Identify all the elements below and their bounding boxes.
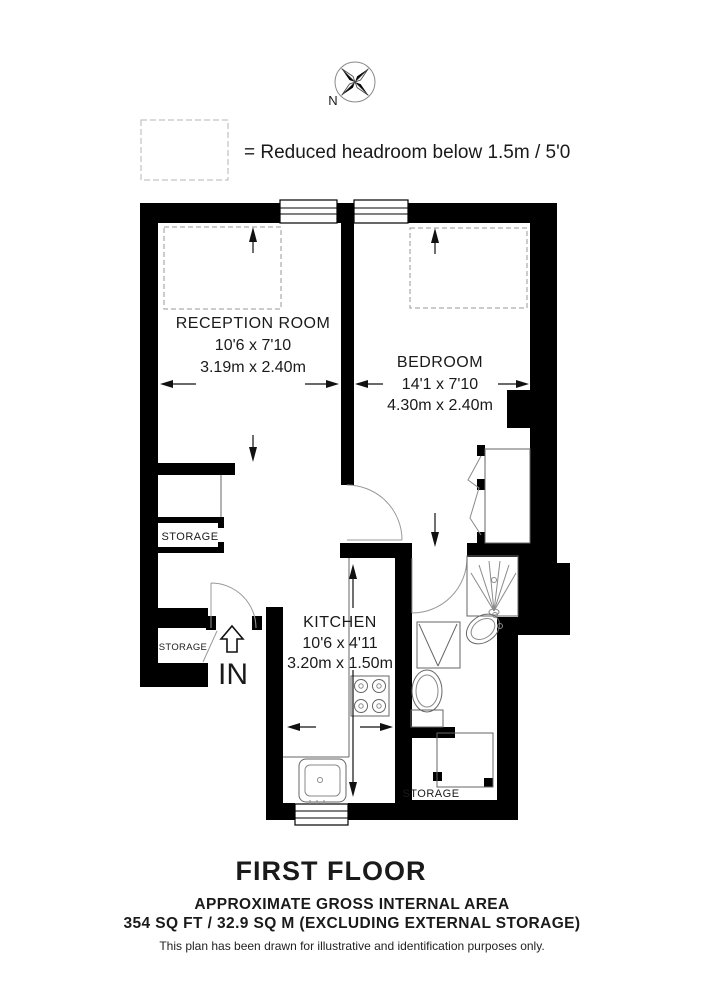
kitchen-labels: KITCHEN 10'6 x 4'11 3.20m x 1.50m <box>287 614 393 672</box>
reception-room-labels: RECEPTION ROOM 10'6 x 7'10 3.19m x 2.40m <box>176 315 331 376</box>
hallway-closet <box>485 449 530 543</box>
entrance-arrow-icon <box>221 626 243 652</box>
room-dims-imperial-kitchen: 10'6 x 4'11 <box>302 635 377 652</box>
room-dims-metric-reception: 3.19m x 2.40m <box>200 359 306 376</box>
hob <box>351 676 389 716</box>
legend-swatch <box>141 120 228 180</box>
door-bedroom <box>347 485 402 540</box>
disclaimer: This plan has been drawn for illustrativ… <box>159 939 544 953</box>
shower-tray <box>417 622 460 668</box>
bifold-closet-door <box>468 456 481 535</box>
floor-title: FIRST FLOOR <box>236 856 427 886</box>
entrance-label: IN <box>218 658 248 691</box>
legend-text: = Reduced headroom below 1.5m / 5'0 <box>244 142 570 163</box>
shower <box>467 556 518 616</box>
toilet <box>411 670 443 727</box>
room-dims-imperial-bedroom: 14'1 x 7'10 <box>402 376 478 393</box>
area-detail: 354 SQ FT / 32.9 SQ M (EXCLUDING EXTERNA… <box>124 915 581 932</box>
door-bathroom <box>412 558 467 613</box>
storage-label-entry: STORAGE <box>159 642 207 653</box>
reduced-headroom-zone-bedroom <box>410 228 527 308</box>
room-name-kitchen: KITCHEN <box>303 614 377 631</box>
north-label: N <box>328 93 337 108</box>
window-kitchen <box>295 804 348 825</box>
storage-label-upper: STORAGE <box>161 531 218 543</box>
room-dims-imperial-reception: 10'6 x 7'10 <box>215 337 291 354</box>
room-dims-metric-bedroom: 4.30m x 2.40m <box>387 397 493 414</box>
room-name-reception: RECEPTION ROOM <box>176 315 331 332</box>
floorplan-page: N = Reduced headroom below 1.5m / 5'0 <box>0 0 707 1000</box>
area-heading: APPROXIMATE GROSS INTERNAL AREA <box>194 896 509 913</box>
door-entrance <box>211 583 256 628</box>
window-bedroom <box>354 200 408 223</box>
storage-label-external: STORAGE <box>402 788 459 800</box>
walls <box>140 203 570 820</box>
footer: FIRST FLOOR APPROXIMATE GROSS INTERNAL A… <box>124 856 581 953</box>
reduced-headroom-legend: = Reduced headroom below 1.5m / 5'0 <box>141 120 570 180</box>
bedroom-labels: BEDROOM 14'1 x 7'10 4.30m x 2.40m <box>387 354 493 414</box>
room-dims-metric-kitchen: 3.20m x 1.50m <box>287 655 393 672</box>
floor-plan-svg: N = Reduced headroom below 1.5m / 5'0 <box>0 0 707 1000</box>
compass-rose: N <box>328 62 375 108</box>
reduced-headroom-zone-reception <box>164 227 281 309</box>
window-reception <box>280 200 337 223</box>
room-name-bedroom: BEDROOM <box>397 354 483 371</box>
kitchen-sink <box>299 759 346 804</box>
